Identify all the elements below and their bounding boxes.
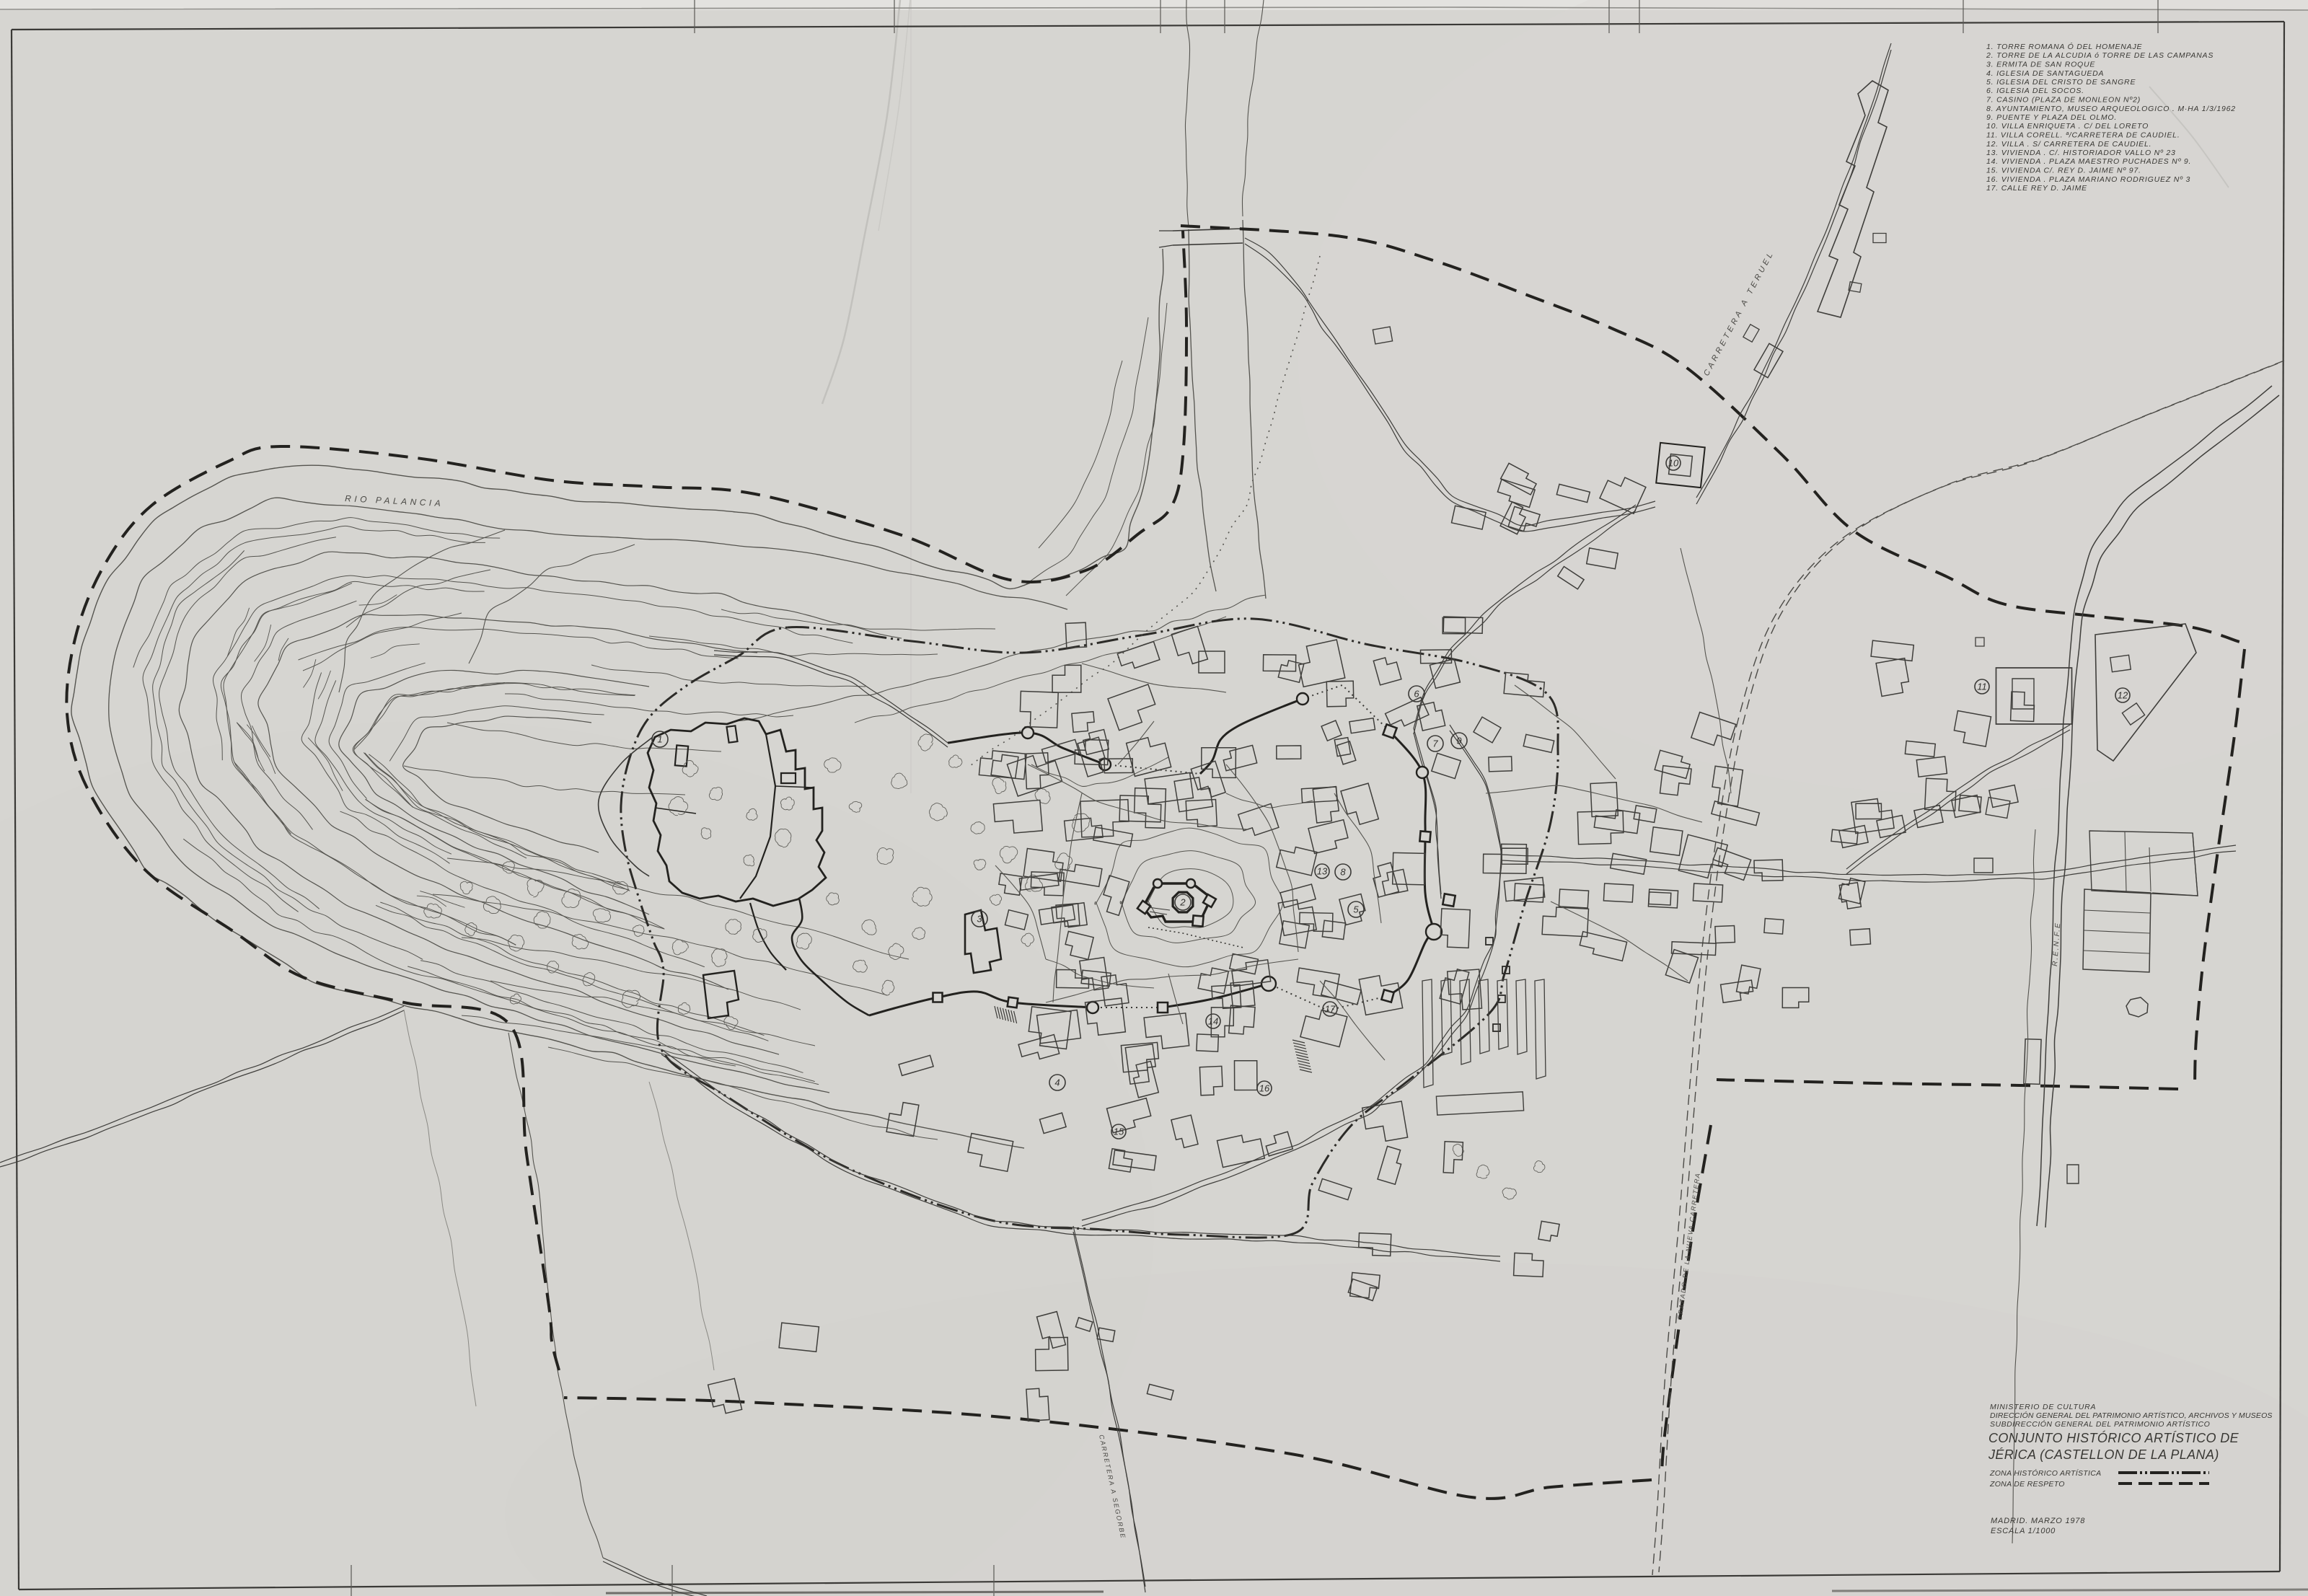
- svg-text:7. CASINO (PLAZA DE MONLEON: 7. CASINO (PLAZA DE MONLEON Nº2): [1986, 96, 2141, 105]
- svg-text:ZONA DE RESPETO: ZONA DE RESPETO: [1989, 1480, 2065, 1489]
- svg-text:13: 13: [1317, 866, 1328, 877]
- svg-text:5: 5: [1353, 904, 1359, 915]
- svg-text:9. PUENTE Y PLAZA DEL OLMO.: 9. PUENTE Y PLAZA DEL OLMO.: [1986, 113, 2117, 122]
- svg-text:6: 6: [1414, 689, 1419, 700]
- svg-text:1. TORRE ROMANA Ó DEL HOME: 1. TORRE ROMANA Ó DEL HOMENAJE: [1986, 42, 2143, 51]
- svg-text:14: 14: [1208, 1016, 1218, 1027]
- svg-text:ESCALA 1/1000: ESCALA 1/1000: [1991, 1527, 2056, 1535]
- svg-text:10: 10: [1668, 458, 1679, 469]
- svg-text:4. IGLESIA DE SANTAGUEDA: 4. IGLESIA DE SANTAGUEDA: [1986, 69, 2104, 78]
- svg-text:3. ERMITA DE SAN ROQUE: 3. ERMITA DE SAN ROQUE: [1986, 61, 2095, 69]
- svg-text:10. VILLA ENRIQUETA . C/ DEL: 10. VILLA ENRIQUETA . C/ DEL LORETO: [1986, 122, 2149, 131]
- svg-text:14. VIVIENDA . PLAZA MAESTRO: 14. VIVIENDA . PLAZA MAESTRO PUCHADES Nº…: [1986, 157, 2191, 166]
- svg-text:3: 3: [977, 914, 982, 925]
- svg-text:2. TORRE DE LA ALCUDIA ó TO: 2. TORRE DE LA ALCUDIA ó TORRE DE LAS CA…: [1986, 51, 2214, 60]
- svg-text:2: 2: [1179, 897, 1186, 908]
- svg-text:11: 11: [1977, 682, 1987, 692]
- svg-text:CONJUNTO HISTÓRICO ARTÍSTICO: CONJUNTO HISTÓRICO ARTÍSTICO DE: [1988, 1430, 2239, 1445]
- svg-text:MADRID. MARZO 1978: MADRID. MARZO 1978: [1991, 1517, 2085, 1525]
- svg-text:6. IGLESIA DEL SOCOS.: 6. IGLESIA DEL SOCOS.: [1986, 87, 2084, 95]
- svg-text:12: 12: [2118, 690, 2128, 701]
- svg-text:9: 9: [1456, 736, 1461, 746]
- svg-text:ZONA HISTÓRICO ARTÍSTICA: ZONA HISTÓRICO ARTÍSTICA: [1989, 1468, 2101, 1478]
- svg-text:1: 1: [657, 734, 662, 745]
- svg-text:16: 16: [1259, 1083, 1270, 1094]
- svg-text:JÉRICA (CASTELLON DE LA P: JÉRICA (CASTELLON DE LA PLANA): [1988, 1447, 2219, 1462]
- svg-text:7: 7: [1432, 739, 1438, 749]
- svg-text:5. IGLESIA DEL CRISTO DE SANG: 5. IGLESIA DEL CRISTO DE SANGRE: [1986, 78, 2136, 87]
- svg-text:SUBDIRECCIÓN GENERAL DEL PATRI: SUBDIRECCIÓN GENERAL DEL PATRIMONIO ARTÍ…: [1990, 1419, 2210, 1429]
- svg-text:15. VIVIENDA C/. REY D. JAIM: 15. VIVIENDA C/. REY D. JAIME Nº 97.: [1986, 167, 2141, 175]
- svg-text:12. VILLA . S/ CARRETERA DE: 12. VILLA . S/ CARRETERA DE CAUDIEL.: [1986, 140, 2151, 149]
- svg-text:4: 4: [1054, 1077, 1060, 1088]
- svg-text:15: 15: [1114, 1127, 1124, 1137]
- svg-text:8. AYUNTAMIENTO, MUSEO ARQUEO: 8. AYUNTAMIENTO, MUSEO ARQUEOLOGICO . M·…: [1986, 105, 2236, 113]
- svg-text:13. VIVIENDA . C/. HISTORIADOR: 13. VIVIENDA . C/. HISTORIADOR VALLO Nº …: [1986, 149, 2176, 157]
- svg-text:8: 8: [1340, 867, 1346, 878]
- svg-text:11. VILLA CORELL. ª/CARRETERA: 11. VILLA CORELL. ª/CARRETERA DE CAUDIEL…: [1986, 131, 2180, 140]
- svg-text:17. CALLE REY D. JAIME: 17. CALLE REY D. JAIME: [1986, 184, 2087, 193]
- svg-text:17: 17: [1325, 1004, 1336, 1015]
- svg-text:16. VIVIENDA . PLAZA MARIANO: 16. VIVIENDA . PLAZA MARIANO RODRIGUEZ N…: [1986, 175, 2190, 184]
- svg-text:MINISTERIO DE CULTURA: MINISTERIO DE CULTURA: [1990, 1403, 2096, 1411]
- svg-text:DIRECCIÓN GENERAL DEL PATRIMON: DIRECCIÓN GENERAL DEL PATRIMONIO ARTÍSTI…: [1990, 1411, 2273, 1420]
